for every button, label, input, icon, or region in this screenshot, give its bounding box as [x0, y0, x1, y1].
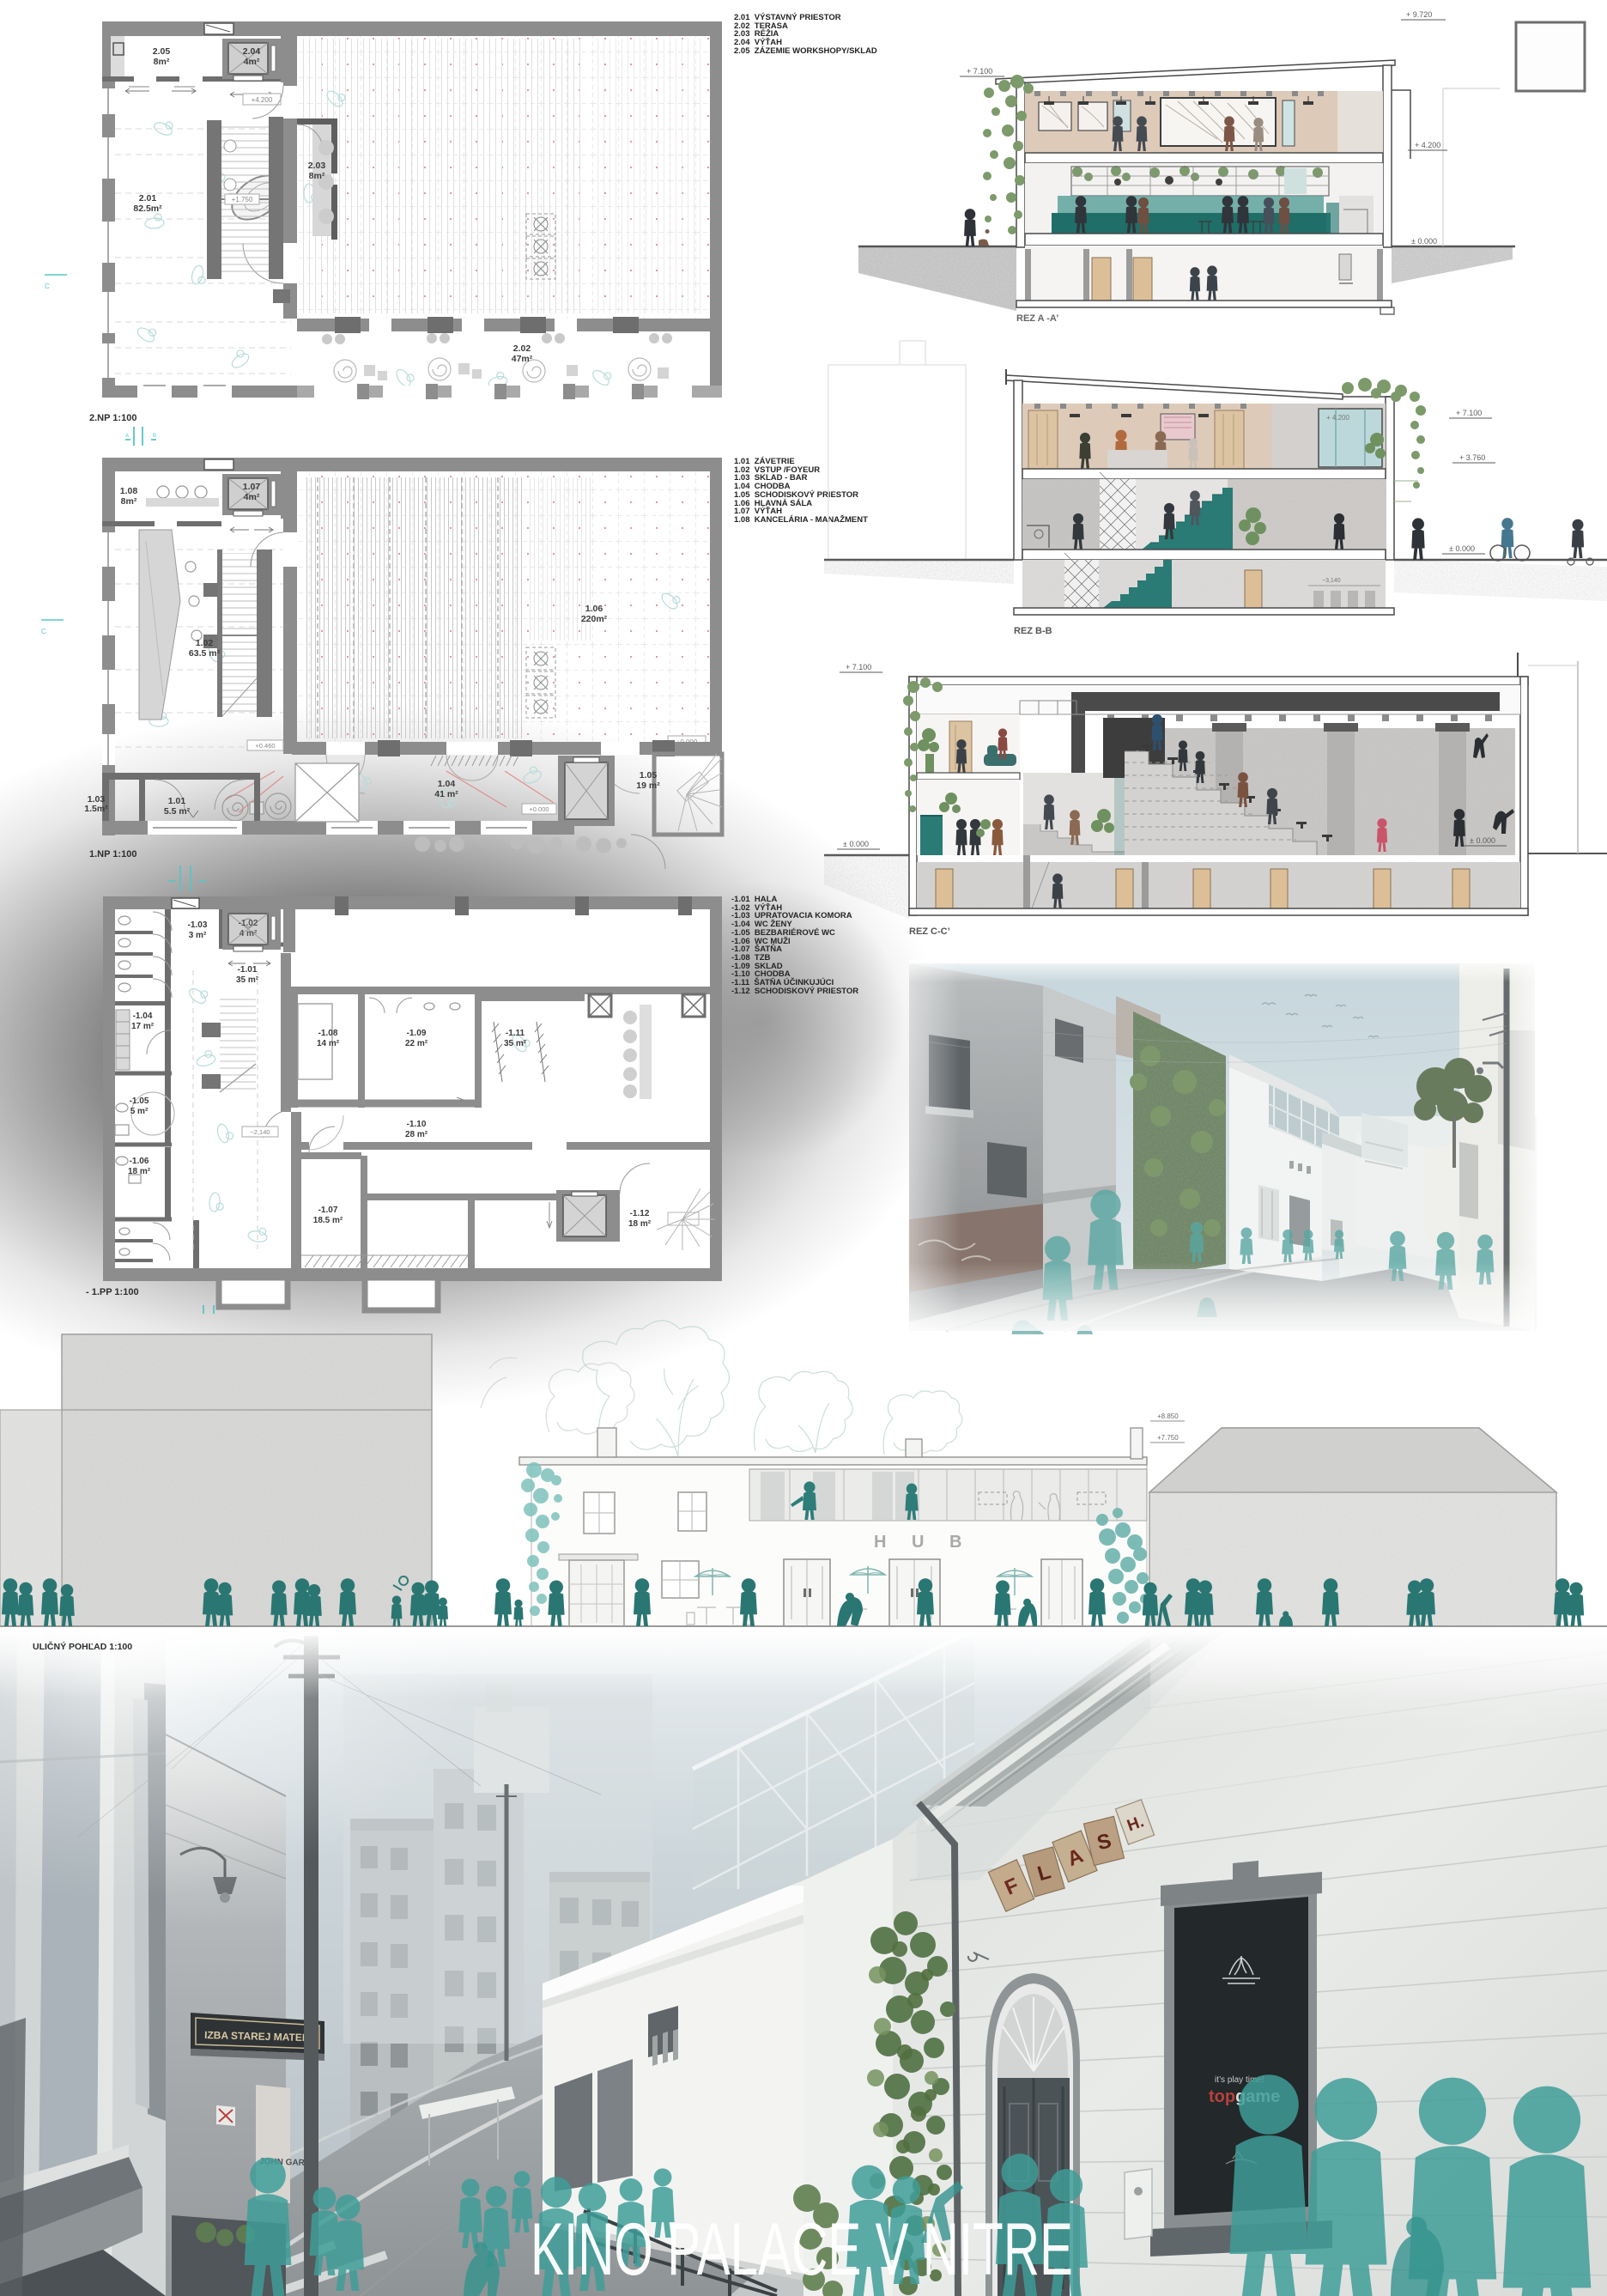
svg-text:2.02: 2.02	[513, 343, 531, 354]
svg-text:2.NP 1:100: 2.NP 1:100	[89, 413, 136, 423]
svg-text:-1.11: -1.11	[506, 1029, 525, 1038]
svg-text:−3,140: −3,140	[1322, 578, 1341, 584]
svg-text:4 m²: 4 m²	[240, 929, 258, 938]
svg-text:-1.02: -1.02	[239, 919, 258, 928]
svg-text:-1.07: -1.07	[318, 1206, 338, 1215]
svg-text:19 m²: 19 m²	[636, 781, 660, 791]
svg-text:82.5m²: 82.5m²	[133, 203, 162, 214]
svg-text:3 m²: 3 m²	[189, 931, 207, 940]
svg-text:± 0.000: ± 0.000	[1470, 836, 1495, 845]
svg-text:REZ B-B: REZ B-B	[1014, 626, 1052, 636]
svg-text:41 m²: 41 m²	[434, 789, 458, 799]
svg-text:+ 4.200: + 4.200	[1415, 141, 1440, 149]
svg-text:17 m²: 17 m²	[131, 1022, 155, 1031]
svg-text:+ 7.100: + 7.100	[1456, 409, 1482, 417]
svg-text:1.02: 1.02	[196, 638, 214, 648]
svg-text:4m²: 4m²	[244, 492, 260, 502]
svg-text:+0.000: +0.000	[529, 805, 549, 813]
svg-text:1.06: 1.06	[585, 604, 603, 614]
svg-text:+8.850: +8.850	[1157, 1412, 1179, 1420]
svg-text:C: C	[41, 628, 46, 635]
svg-text:8m²: 8m²	[154, 57, 170, 67]
svg-text:1.NP 1:100: 1.NP 1:100	[89, 849, 136, 859]
svg-text:-1.10: -1.10	[407, 1120, 427, 1129]
svg-text:1.07: 1.07	[243, 482, 261, 492]
svg-text:REZ C-C’: REZ C-C’	[909, 926, 950, 937]
svg-text:-1.12: -1.12	[630, 1209, 650, 1218]
svg-text:2.05: 2.05	[153, 46, 171, 57]
svg-text:5 m²: 5 m²	[130, 1107, 149, 1116]
svg-text:-1.01: -1.01	[238, 965, 258, 975]
svg-text:14 m²: 14 m²	[317, 1039, 340, 1048]
svg-text:-1.08: -1.08	[318, 1029, 338, 1038]
svg-text:2.04: 2.04	[243, 46, 261, 57]
svg-text:4m²: 4m²	[244, 57, 260, 67]
svg-text:C: C	[45, 282, 50, 290]
svg-text:REZ A -A’: REZ A -A’	[1016, 313, 1058, 324]
svg-text:8m²: 8m²	[309, 171, 325, 181]
svg-text:1.04: 1.04	[438, 779, 456, 789]
svg-text:ULIČNÝ POHĽAD 1:100: ULIČNÝ POHĽAD 1:100	[33, 1641, 132, 1652]
svg-text:+ 7.100: + 7.100	[846, 663, 871, 671]
svg-text:35 m²: 35 m²	[504, 1039, 527, 1048]
svg-text:18 m²: 18 m²	[128, 1167, 151, 1176]
svg-text:47m²: 47m²	[512, 354, 533, 364]
svg-text:220m²: 220m²	[581, 614, 608, 624]
svg-text:18 m²: 18 m²	[628, 1219, 652, 1229]
svg-text:2.03: 2.03	[308, 161, 326, 171]
svg-text:5.5 m²: 5.5 m²	[164, 806, 191, 817]
svg-text:-1.09: -1.09	[407, 1029, 427, 1038]
svg-text:± 0.000: ± 0.000	[1411, 237, 1437, 246]
svg-text:-1.05: -1.05	[130, 1096, 149, 1106]
svg-text:-1.03: -1.03	[188, 920, 208, 930]
svg-text:1.01: 1.01	[168, 796, 186, 806]
svg-text:KINO PALACE V NITRE: KINO PALACE V NITRE	[531, 2208, 1073, 2291]
svg-text:63.5 m²: 63.5 m²	[189, 648, 221, 659]
svg-text:1.05: 1.05	[640, 770, 658, 781]
svg-text:-1.06: -1.06	[130, 1157, 149, 1166]
svg-text:8m²: 8m²	[121, 496, 137, 507]
svg-text:-1.04: -1.04	[133, 1011, 153, 1021]
svg-text:22 m²: 22 m²	[405, 1039, 428, 1048]
svg-text:1.08: 1.08	[120, 486, 138, 496]
svg-text:+ 3.760: + 3.760	[1459, 453, 1485, 462]
svg-text:A: A	[125, 434, 129, 439]
svg-text:18.5 m²: 18.5 m²	[313, 1216, 343, 1225]
svg-text:+0.460: +0.460	[255, 742, 275, 750]
svg-text:H U B: H U B	[874, 1533, 972, 1552]
svg-text:+ 9.720: + 9.720	[1406, 10, 1432, 19]
svg-text:1.5m²: 1.5m²	[84, 804, 108, 814]
svg-text:± 0.000: ± 0.000	[1449, 544, 1475, 553]
svg-text:B: B	[153, 434, 156, 439]
svg-text:+ 4.200: + 4.200	[1326, 414, 1349, 422]
svg-text:−2,140: −2,140	[250, 1128, 270, 1136]
svg-text:+4.200: +4.200	[252, 96, 273, 104]
svg-text:+ 7.100: + 7.100	[967, 67, 992, 76]
svg-text:+1.750: +1.750	[232, 196, 253, 203]
svg-text:2.01: 2.01	[139, 193, 157, 203]
svg-text:± 0.000: ± 0.000	[843, 840, 869, 848]
svg-text:+7.750: +7.750	[1157, 1434, 1179, 1442]
svg-text:35 m²: 35 m²	[236, 975, 259, 985]
svg-text:28 m²: 28 m²	[405, 1130, 428, 1139]
